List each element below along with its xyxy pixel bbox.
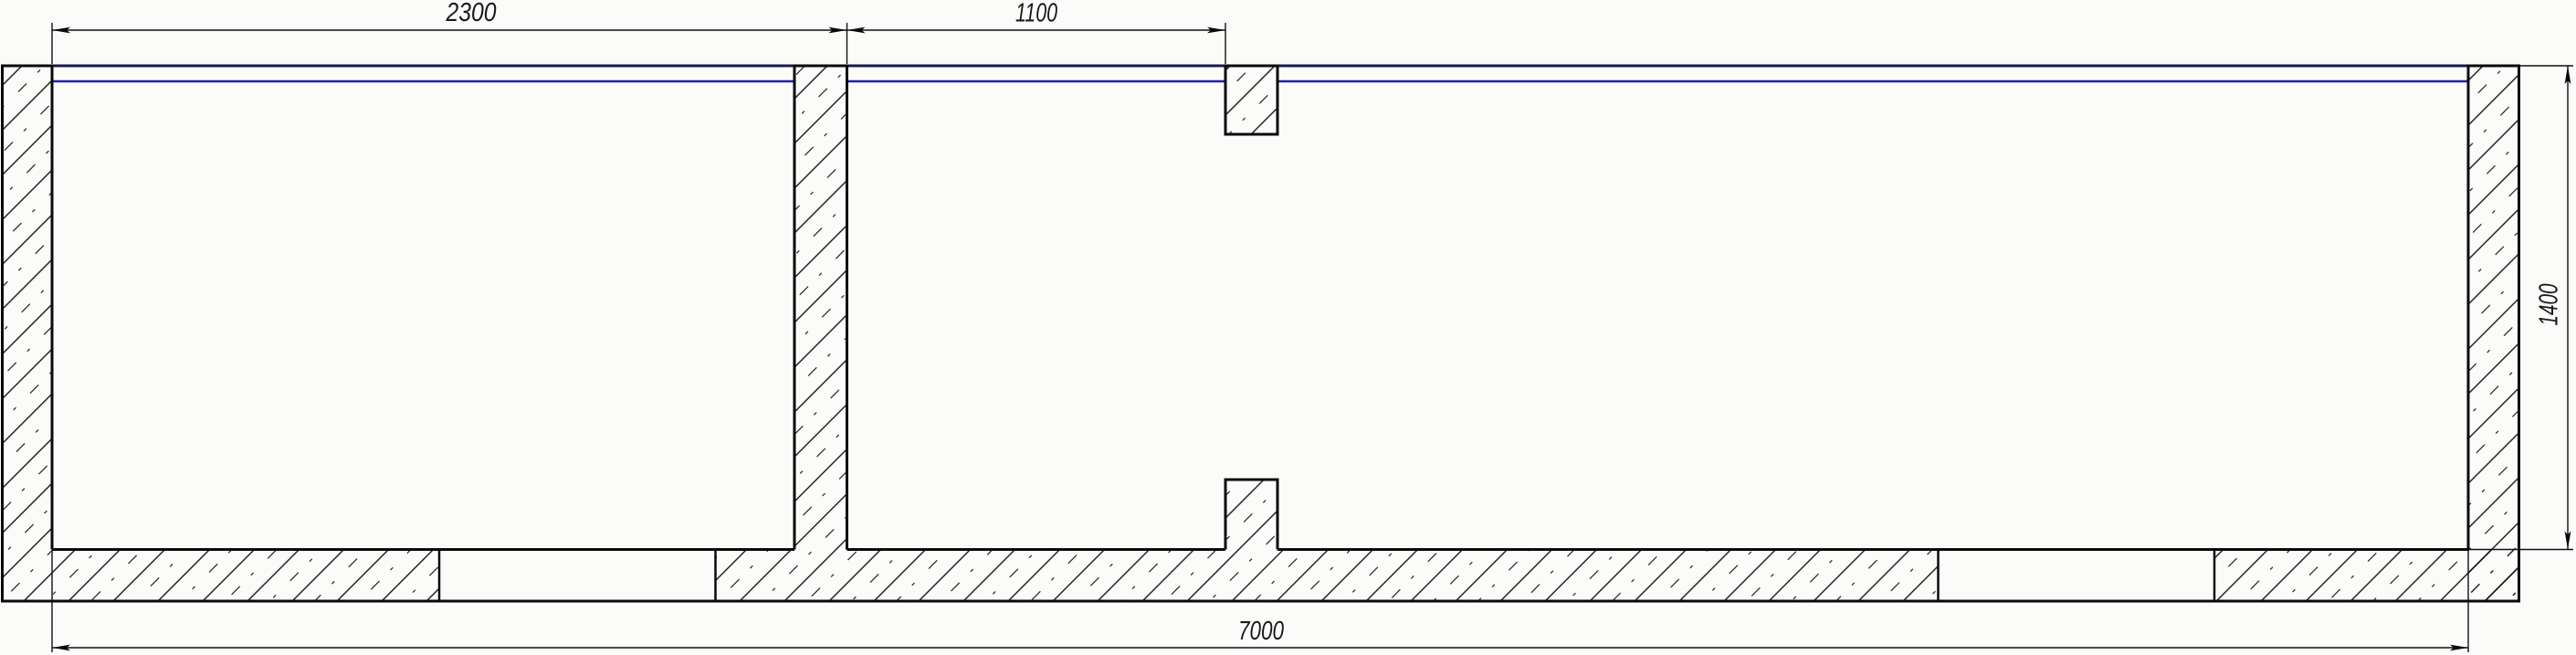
svg-text:7000: 7000: [1238, 617, 1284, 646]
svg-text:1400: 1400: [2535, 284, 2564, 326]
svg-text:2300: 2300: [446, 0, 497, 27]
svg-text:1100: 1100: [1015, 0, 1057, 28]
